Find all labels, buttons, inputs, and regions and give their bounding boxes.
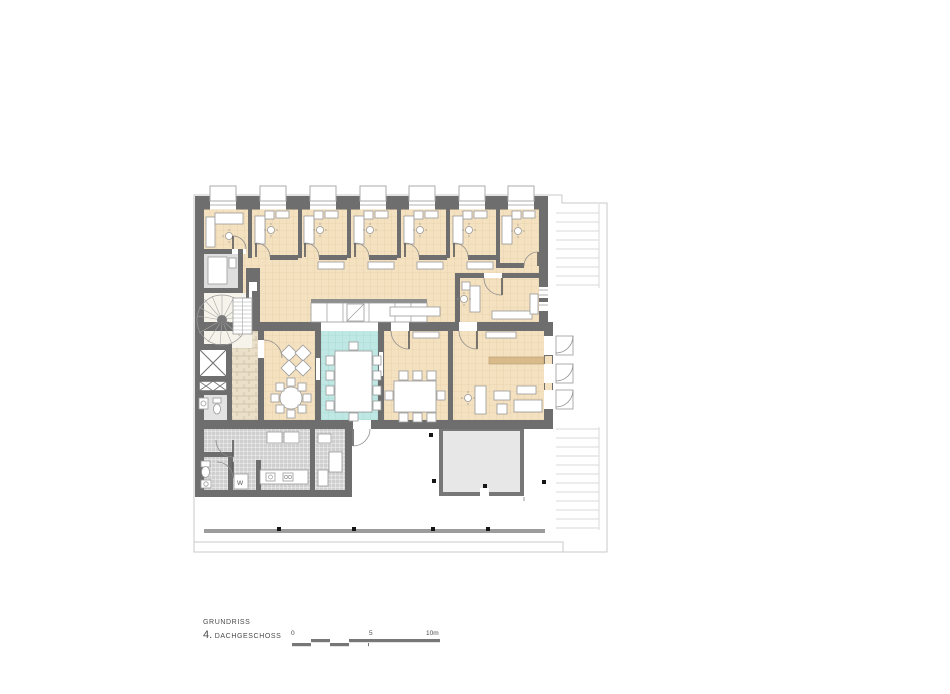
- dormer-window: [260, 186, 286, 201]
- dormer-window: [210, 186, 236, 201]
- top-wall-and-dormers: [195, 186, 548, 210]
- corridor-counter: [311, 299, 440, 322]
- wc-lower: [201, 461, 211, 488]
- dormer-window: [310, 186, 336, 201]
- straight-staircase: [233, 298, 252, 334]
- dormer-window: [360, 186, 386, 201]
- elevator: [199, 349, 227, 377]
- floor-label: 4. DACHGESCHOSS: [203, 629, 281, 641]
- dormer-window: [409, 186, 435, 201]
- dormer-window: [508, 186, 534, 201]
- floor-number: 4.: [203, 629, 212, 641]
- roof-hatch-lower: [556, 427, 599, 530]
- dormer-window: [459, 186, 485, 201]
- scale-bar-graphic: [288, 630, 453, 652]
- plan-type-label: GRUNDRISS: [203, 619, 281, 626]
- floor-plan-page: W GRUNDRISS 4. DACHGESCHOSS 0 5 10m: [0, 0, 950, 694]
- washing-machine: W: [234, 474, 248, 489]
- scale-bar: 0 5 10m: [288, 630, 453, 652]
- terrace-skylight-box: [441, 429, 522, 494]
- title-block: GRUNDRISS 4. DACHGESCHOSS: [203, 619, 281, 641]
- washer-label: W: [237, 480, 244, 487]
- roof-hatch-upper: [556, 204, 599, 288]
- terrace-door: [353, 429, 370, 446]
- terrace-railing: [204, 529, 545, 533]
- floor-name: DACHGESCHOSS: [215, 633, 282, 640]
- balcony-doors: [556, 336, 573, 409]
- floor-plan-drawing: W: [0, 0, 950, 694]
- shaft: [199, 381, 227, 391]
